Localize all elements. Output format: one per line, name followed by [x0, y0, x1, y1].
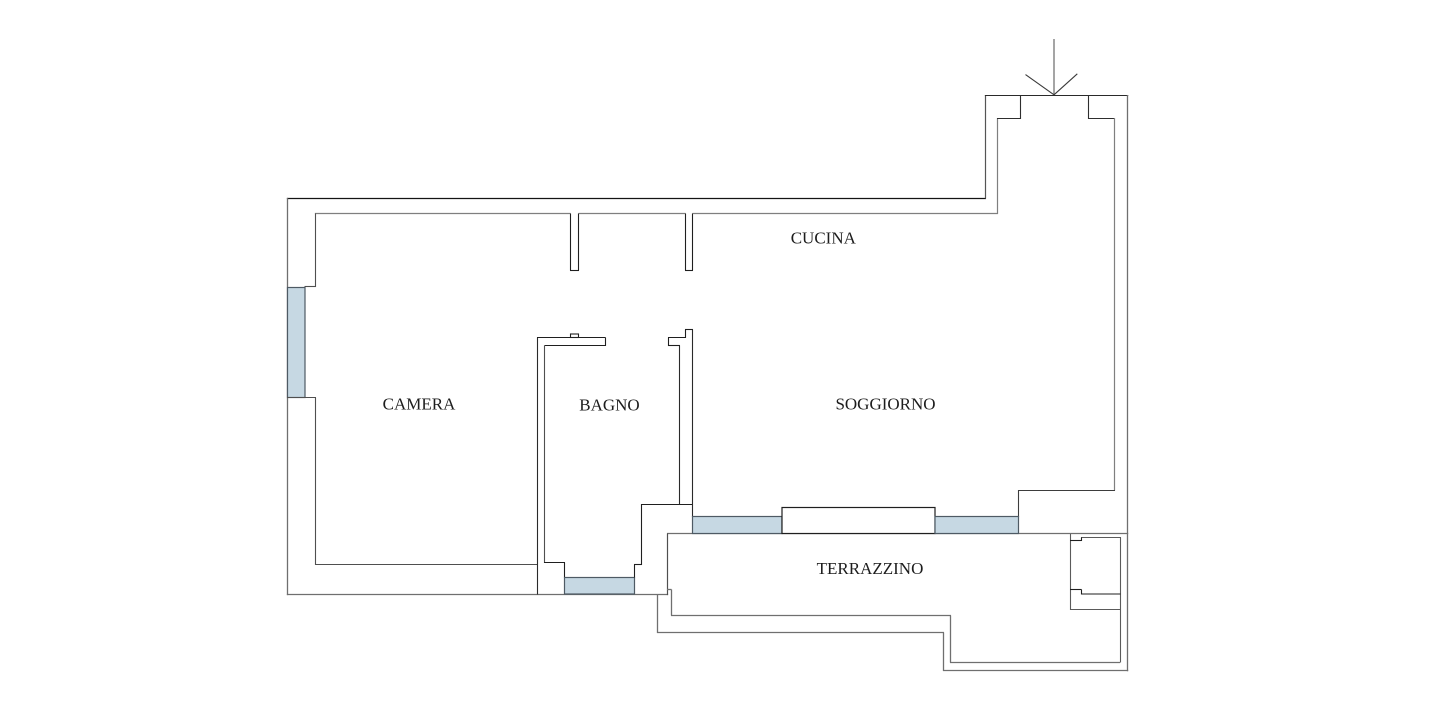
- svg-text:BAGNO: BAGNO: [579, 396, 639, 415]
- svg-text:SOGGIORNO: SOGGIORNO: [835, 395, 935, 414]
- svg-text:TERRAZZINO: TERRAZZINO: [817, 559, 924, 578]
- svg-text:CAMERA: CAMERA: [383, 395, 456, 414]
- svg-text:CUCINA: CUCINA: [791, 229, 857, 248]
